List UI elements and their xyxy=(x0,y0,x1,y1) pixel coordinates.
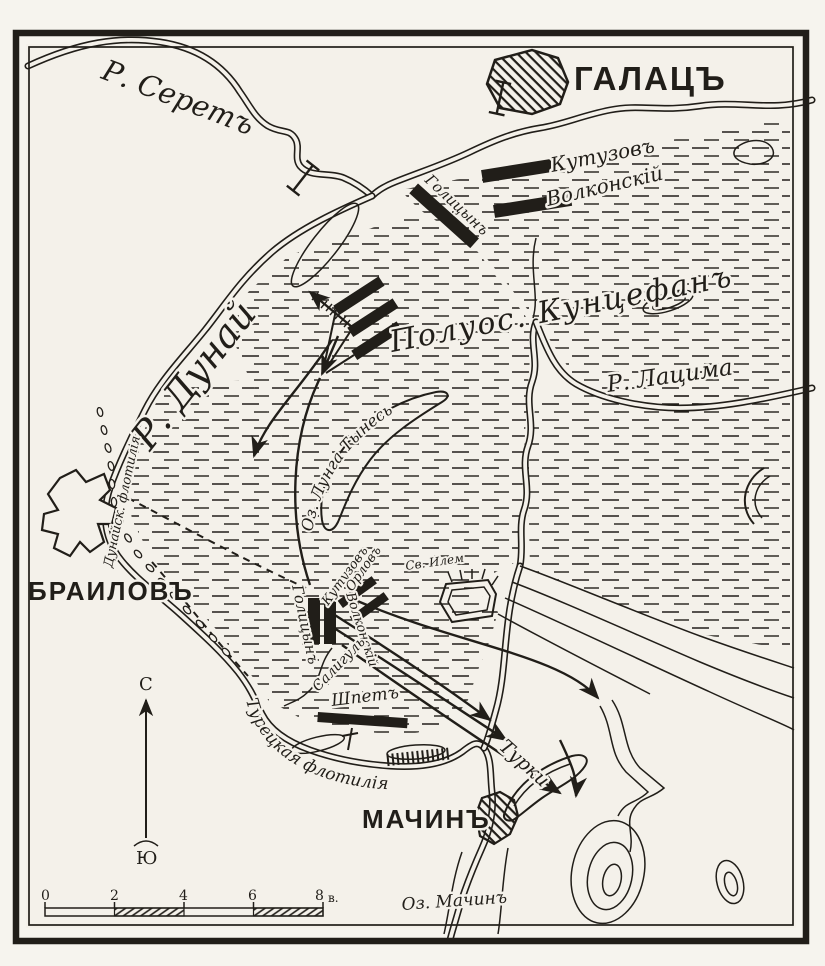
label-city-brailov: БРАИЛОВЪ xyxy=(28,576,194,606)
scale-tick-0: 0 xyxy=(41,888,50,904)
scale-tick-6: 6 xyxy=(248,888,257,904)
compass-south-label: Ю xyxy=(136,848,157,869)
scale-tick-2: 2 xyxy=(110,888,119,904)
map-page: С Ю 0 2 4 6 8 в. Р. Серетъ ГАЛАЦЪ Кутузо… xyxy=(0,0,825,966)
battle-map-svg: С Ю 0 2 4 6 8 в. Р. Серетъ ГАЛАЦЪ Кутузо… xyxy=(0,0,825,966)
scale-tick-4: 4 xyxy=(179,888,188,904)
scale-unit-label: в. xyxy=(328,891,339,905)
compass-north-label: С xyxy=(139,674,153,695)
label-city-galats: ГАЛАЦЪ xyxy=(574,60,727,97)
label-city-machin: МАЧИНЪ xyxy=(362,804,491,834)
scale-tick-8: 8 xyxy=(315,888,324,904)
